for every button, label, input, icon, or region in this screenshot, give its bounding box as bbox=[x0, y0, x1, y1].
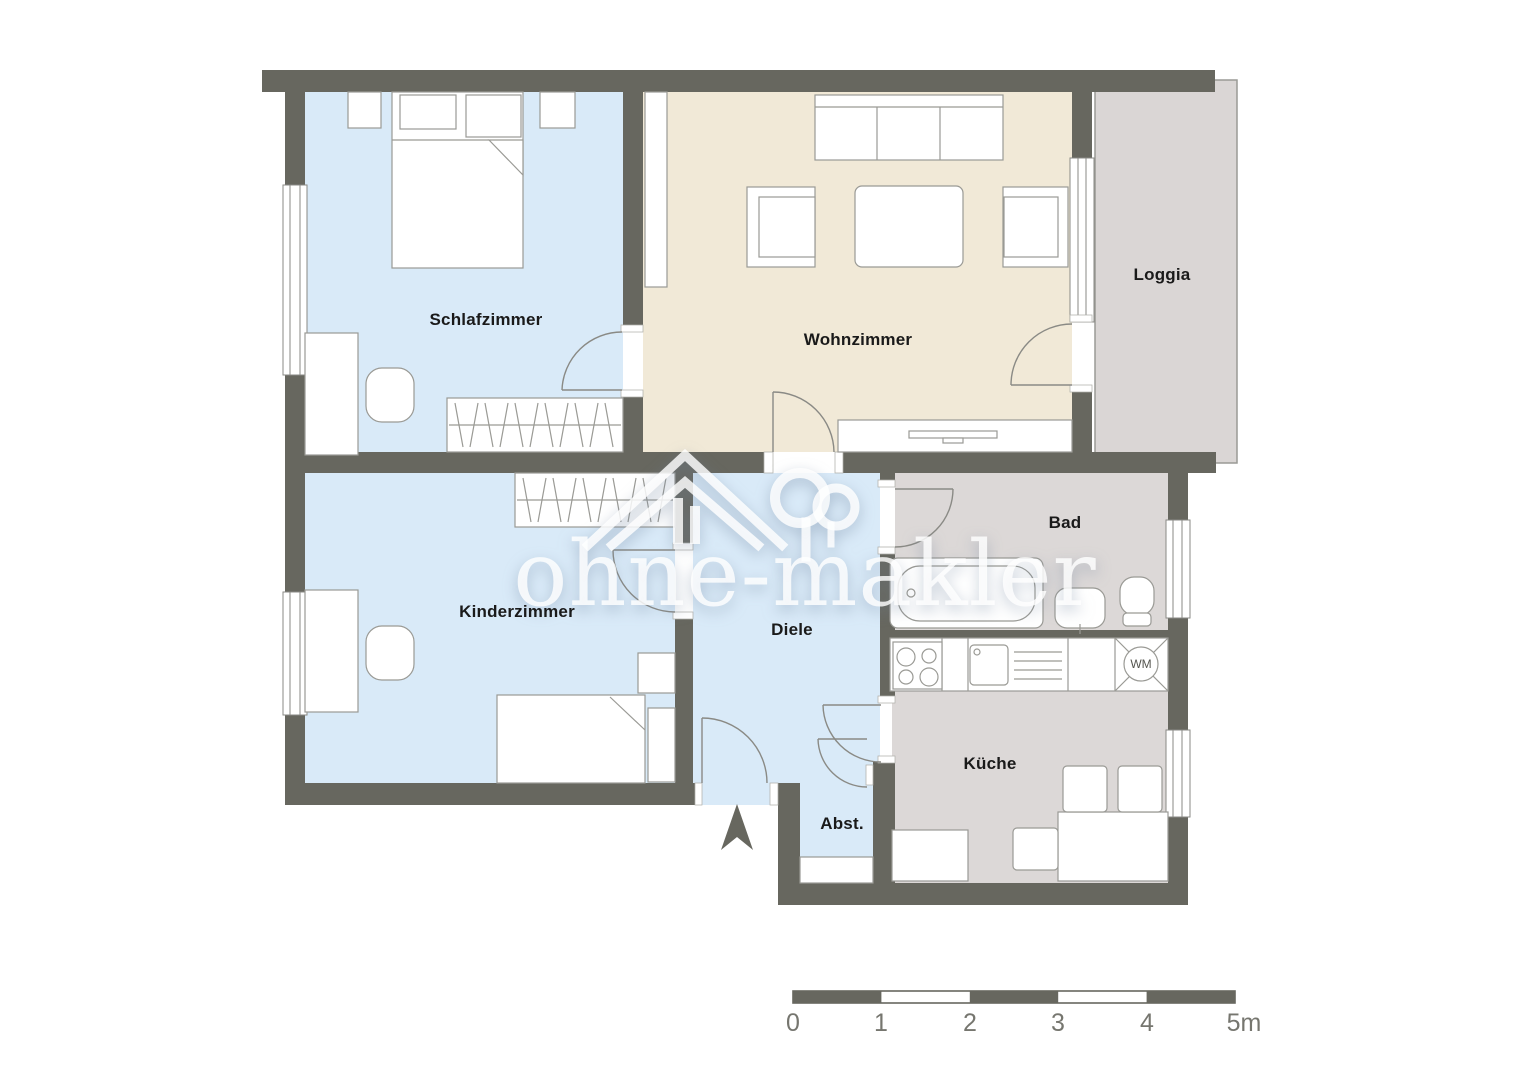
entrance-arrow bbox=[721, 804, 753, 850]
wardrobe-kinderzimmer bbox=[515, 473, 675, 527]
scale-label-2: 2 bbox=[963, 1009, 977, 1038]
stove bbox=[893, 642, 942, 689]
room-label-schlafzimmer: Schlafzimmer bbox=[430, 310, 543, 330]
armchair-left bbox=[747, 187, 815, 267]
wardrobe-schlafzimmer bbox=[447, 398, 623, 452]
toilet bbox=[1120, 577, 1154, 626]
storage-shelf bbox=[800, 857, 873, 883]
nightstand-kinderzimmer bbox=[638, 653, 675, 693]
coffee-table bbox=[855, 186, 963, 267]
kitchen-counter bbox=[890, 638, 1168, 691]
sideboard-tv bbox=[838, 420, 1072, 452]
scale-label-5m: 5m bbox=[1227, 1009, 1262, 1038]
desk-schlafzimmer bbox=[305, 333, 358, 455]
window-kinderzimmer-left bbox=[283, 592, 307, 715]
kitchen-table bbox=[1058, 812, 1168, 881]
room-label-bad: Bad bbox=[1049, 513, 1082, 533]
room-label-kueche: Küche bbox=[964, 754, 1017, 774]
washing-machine-label: WM bbox=[1130, 657, 1151, 671]
scale-label-3: 3 bbox=[1051, 1009, 1065, 1038]
scale-bar bbox=[793, 991, 1235, 1003]
kitchen-chair-2 bbox=[1118, 766, 1162, 812]
bathtub bbox=[890, 558, 1043, 628]
bed-single bbox=[497, 695, 675, 783]
kitchen-cabinet bbox=[892, 830, 968, 881]
window-kueche-right bbox=[1166, 730, 1190, 817]
window-schlafzimmer-left bbox=[283, 185, 307, 375]
window-wohnzimmer-loggia bbox=[1070, 158, 1094, 322]
desk-kinderzimmer bbox=[305, 590, 358, 712]
chair-kinderzimmer bbox=[366, 626, 414, 680]
cabinet-tall bbox=[645, 92, 667, 287]
kitchen-chair-1 bbox=[1063, 766, 1107, 812]
room-label-diele: Diele bbox=[771, 620, 813, 640]
scale-label-1: 1 bbox=[874, 1009, 888, 1038]
floor-plan-canvas: ohne-makler Schlafzimmer Wohnzimmer Logg… bbox=[0, 0, 1527, 1080]
floor-plan-drawing bbox=[0, 0, 1527, 1080]
room-label-kinderzimmer: Kinderzimmer bbox=[459, 602, 575, 622]
bed-double bbox=[392, 92, 523, 268]
armchair-right bbox=[1003, 187, 1068, 267]
chair-schlafzimmer bbox=[366, 368, 414, 422]
sofa bbox=[815, 95, 1003, 160]
window-bad-right bbox=[1166, 520, 1190, 618]
scale-label-0: 0 bbox=[786, 1009, 800, 1038]
nightstand-left bbox=[348, 92, 381, 128]
room-label-loggia: Loggia bbox=[1134, 265, 1191, 285]
kitchen-chair-3 bbox=[1013, 828, 1058, 870]
nightstand-right bbox=[540, 92, 575, 128]
washbasin bbox=[1055, 588, 1105, 634]
room-label-wohnzimmer: Wohnzimmer bbox=[804, 330, 912, 350]
scale-label-4: 4 bbox=[1140, 1009, 1154, 1038]
room-label-abstellraum: Abst. bbox=[820, 814, 864, 834]
